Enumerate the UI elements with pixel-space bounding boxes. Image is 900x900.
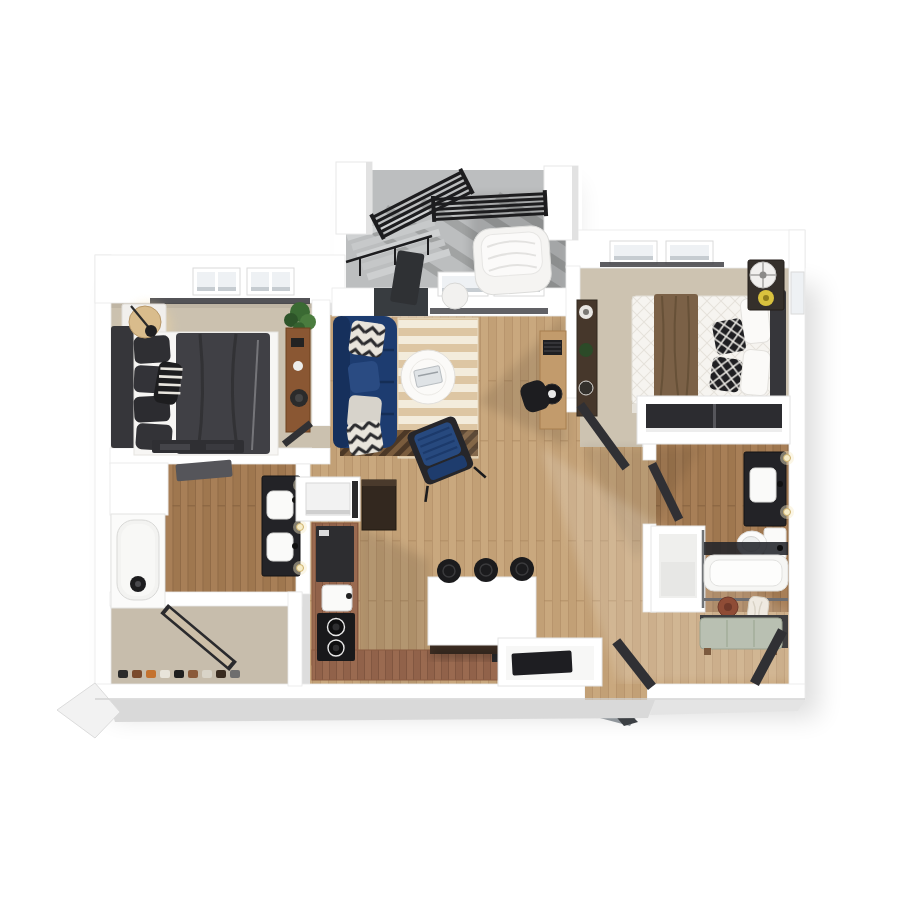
- floor-plan-render: [0, 0, 900, 900]
- bedroom2-side-window: [791, 272, 804, 314]
- living-window-trim: [430, 308, 548, 314]
- sink-2: [267, 533, 293, 561]
- tub-with-glass: [704, 542, 788, 591]
- vanity-2: [744, 451, 794, 526]
- island-top: [428, 577, 536, 645]
- diamond-pillow-2: [709, 356, 743, 393]
- bar-stool-2: [474, 558, 498, 582]
- sink-3: [750, 468, 776, 502]
- bedroom2-closet: [637, 396, 790, 444]
- laundry-gap: [352, 481, 358, 518]
- wall-bottom-b: [647, 684, 805, 700]
- coffee-table: [401, 350, 455, 404]
- fridge-cabinet: [362, 480, 396, 530]
- diamond-pillow-1: [711, 318, 746, 356]
- dresser-console: [286, 328, 310, 432]
- bedroom2-window-1: [610, 241, 657, 264]
- chevron-pillow-2: [346, 420, 385, 457]
- cooktop: [317, 613, 355, 661]
- bedroom2-window-trim: [600, 262, 724, 267]
- decor-plant: [579, 343, 593, 357]
- laundry-closet: [296, 477, 360, 521]
- bathtub: [111, 514, 165, 608]
- bar-stool-3: [510, 557, 534, 581]
- door-mat: [511, 650, 572, 675]
- bedroom1-window-1: [193, 268, 240, 295]
- balcony-pillar-right: [544, 166, 578, 240]
- wall-closet-right: [288, 592, 302, 686]
- bedroom1-doorway: [312, 426, 330, 448]
- wall-bathroom2-left-a: [643, 442, 656, 460]
- tub-alcove-wall: [110, 463, 168, 515]
- white-pillow-2: [740, 349, 771, 396]
- balcony-pillar-left: [336, 162, 372, 234]
- floor-plan-canvas: [0, 0, 900, 900]
- dresser-2: [577, 300, 597, 416]
- navy-pillow: [347, 360, 380, 393]
- sofa: [333, 316, 397, 456]
- media-console: [152, 440, 244, 453]
- bedroom1-window-trim: [150, 298, 310, 304]
- decor-speaker: [579, 381, 593, 395]
- balcony-side-table: [442, 283, 468, 309]
- bedroom2-window-2: [666, 241, 713, 264]
- nightstand-2: [748, 260, 784, 310]
- chevron-pillow-1: [348, 320, 386, 358]
- shower-enclosure: [651, 526, 705, 612]
- bar-stool-1: [437, 559, 461, 583]
- bedside-lamp: [129, 306, 161, 338]
- hook-rail: [704, 598, 788, 601]
- shoe-row: [118, 670, 240, 678]
- bedroom1-window-2: [247, 268, 294, 295]
- wall-left: [95, 255, 111, 700]
- lounge-chair: [472, 225, 552, 296]
- sink-1: [267, 491, 293, 519]
